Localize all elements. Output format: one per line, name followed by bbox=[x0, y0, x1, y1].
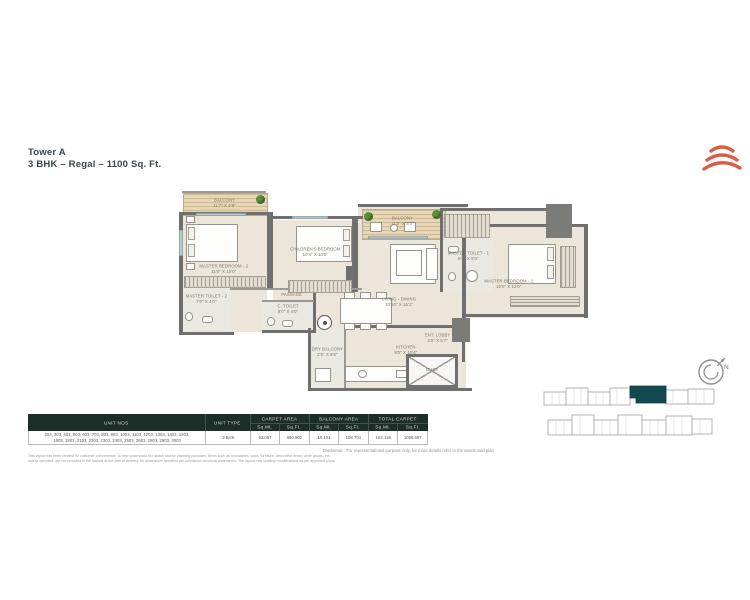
cell-carpet-sqft: 990.902 bbox=[279, 431, 310, 445]
sofa-seat bbox=[426, 248, 438, 280]
key-plan bbox=[542, 384, 720, 448]
page-subtitle: 3 BHK – Regal – 1100 Sq. Ft. bbox=[28, 159, 161, 170]
wall bbox=[308, 388, 472, 391]
cell-balcony-sqft: 108.704 bbox=[338, 431, 369, 445]
wall bbox=[262, 300, 314, 302]
subheader-sqft: Sq.Ft. bbox=[338, 423, 368, 431]
wardrobe bbox=[560, 246, 576, 288]
col-header-unit-nos: UNIT NOS bbox=[28, 414, 205, 431]
subheader-sqmt: Sq.Mt. bbox=[368, 423, 397, 431]
dining-chair bbox=[344, 292, 355, 299]
subheader-sqmt: Sq.Mt. bbox=[250, 423, 279, 431]
room-label-duct: DUCT bbox=[406, 364, 458, 376]
dining-chair bbox=[376, 323, 387, 330]
area-table: UNIT NOS UNIT TYPE CARPET AREA BALCONY A… bbox=[28, 414, 428, 445]
wall bbox=[182, 191, 266, 193]
room-label-balcony-2: BALCONY11'7" X 2'9" bbox=[183, 194, 266, 212]
wc-fixture bbox=[185, 312, 193, 321]
cell-balcony-sqmt: 10.101 bbox=[309, 431, 339, 445]
col-header-total-carpet: TOTAL CARPET bbox=[368, 414, 428, 423]
room-label-passage: PASSAGE bbox=[264, 290, 320, 300]
pillow bbox=[343, 229, 350, 241]
room-label-balcony-1: BALCONY11'0" X 4'0" bbox=[362, 214, 444, 228]
washbasin bbox=[202, 316, 213, 323]
room-label-children-bedroom: CHILDREN'S BEDROOM10'4" X 10'0" bbox=[273, 244, 357, 260]
window-ledge bbox=[510, 296, 580, 307]
window bbox=[196, 213, 246, 216]
cell-carpet-sqmt: 92.057 bbox=[250, 431, 280, 445]
key-plan-highlighted-unit bbox=[630, 386, 666, 403]
wardrobe bbox=[184, 276, 266, 288]
cell-unit-nos: 203, 303, 403, 503, 603, 703, 803, 903, … bbox=[28, 431, 206, 445]
pillow bbox=[188, 244, 195, 257]
cell-total-sqft: 1099.607 bbox=[397, 431, 428, 445]
fine-print-line-2: unless specified, are not provided in th… bbox=[28, 457, 384, 463]
nightstand bbox=[186, 216, 195, 223]
wall bbox=[358, 204, 468, 207]
kitchen-sink bbox=[358, 370, 367, 378]
brand-logo-arcs-icon bbox=[700, 140, 744, 180]
subheader-sqft: Sq.Ft. bbox=[397, 423, 428, 431]
compass-north-label: N bbox=[724, 364, 729, 371]
room-label-master-bedroom-2: MASTER BEDROOM - 211'0" X 10'0" bbox=[181, 262, 267, 276]
room-label-ent-lobby: ENT. LOBBY4'0" X 5'7" bbox=[414, 330, 462, 346]
wc-fixture bbox=[267, 317, 275, 326]
pillow bbox=[188, 227, 195, 240]
utility-point-icon bbox=[317, 315, 332, 330]
col-header-unit-type: UNIT TYPE bbox=[205, 414, 250, 431]
window bbox=[179, 230, 183, 256]
wall bbox=[466, 314, 588, 317]
washing-machine bbox=[315, 368, 331, 382]
window bbox=[292, 216, 328, 219]
room-label-dry-balcony: DRY BALCONY2'6" X 8'8" bbox=[306, 342, 348, 362]
subheader-sqft: Sq.Ft. bbox=[279, 423, 309, 431]
col-header-carpet-area: CARPET AREA bbox=[250, 414, 309, 423]
floor-plan: BALCONY11'7" X 2'9" MASTER BEDROOM - 211… bbox=[168, 186, 600, 396]
compass-icon: N bbox=[696, 354, 730, 388]
room-label-c-toilet: C. TOILET8'0" X 4'0" bbox=[262, 303, 314, 315]
cell-total-sqmt: 102.158 bbox=[368, 431, 398, 445]
pillow bbox=[547, 247, 554, 261]
page-title: Tower A bbox=[28, 147, 66, 158]
window bbox=[368, 236, 428, 239]
col-header-balcony-area: BALCONY AREA bbox=[309, 414, 368, 423]
wall bbox=[584, 224, 588, 318]
dining-chair bbox=[360, 323, 371, 330]
sofa-table bbox=[396, 250, 422, 276]
wc-fixture bbox=[448, 272, 456, 281]
washbasin bbox=[282, 320, 293, 327]
subheader-sqmt: Sq.Mt. bbox=[309, 423, 338, 431]
room-label-master-toilet-2: MASTER TOILET - 27'0" X 4'0" bbox=[181, 291, 231, 307]
wall bbox=[179, 332, 234, 335]
pillow bbox=[547, 265, 554, 279]
cell-unit-type: 3 BHK bbox=[205, 431, 251, 445]
wardrobe bbox=[444, 214, 490, 238]
room-label-living-dining: LIVING - DINING10'10" X 16'1" bbox=[364, 294, 434, 310]
room-label-master-toilet-1: MASTER TOILET - 15'0" X 8'0" bbox=[443, 248, 493, 264]
room-label-master-bedroom-1: MASTER BEDROOM - 110'0" X 12'0" bbox=[474, 276, 544, 292]
wall bbox=[440, 208, 548, 211]
dining-chair bbox=[344, 323, 355, 330]
service-shaft-block bbox=[546, 204, 572, 238]
